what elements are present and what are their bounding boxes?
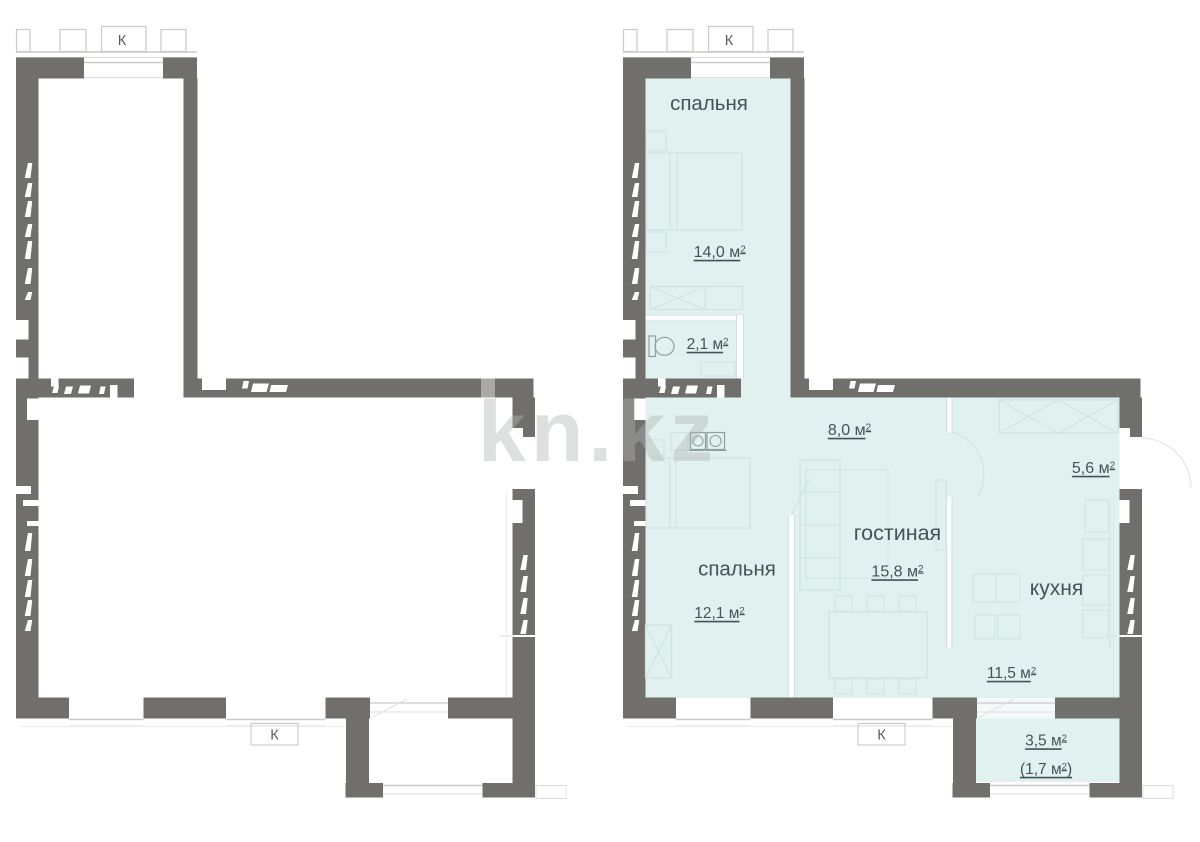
svg-text:К: К <box>877 728 886 744</box>
svg-text:kn.kz: kn.kz <box>478 384 718 480</box>
svg-text:спальня: спальня <box>698 558 776 581</box>
svg-text:К: К <box>725 33 734 49</box>
svg-text:15,8 м2: 15,8 м2 <box>871 564 923 581</box>
svg-text:14,0 м2: 14,0 м2 <box>694 244 746 261</box>
svg-text:11,5 м2: 11,5 м2 <box>987 665 1036 682</box>
svg-text:5,6 м2: 5,6 м2 <box>1072 460 1115 477</box>
svg-text:спальня: спальня <box>670 92 748 115</box>
svg-text:3,5 м2: 3,5 м2 <box>1025 733 1067 750</box>
svg-text:гостиная: гостиная <box>854 521 941 545</box>
svg-text:12,1 м2: 12,1 м2 <box>694 605 744 622</box>
svg-text:2,1 м2: 2,1 м2 <box>687 336 729 353</box>
svg-text:8,0 м2: 8,0 м2 <box>828 422 871 439</box>
svg-text:кухня: кухня <box>1030 577 1083 600</box>
svg-text:К: К <box>118 33 127 49</box>
svg-text:К: К <box>270 728 279 744</box>
